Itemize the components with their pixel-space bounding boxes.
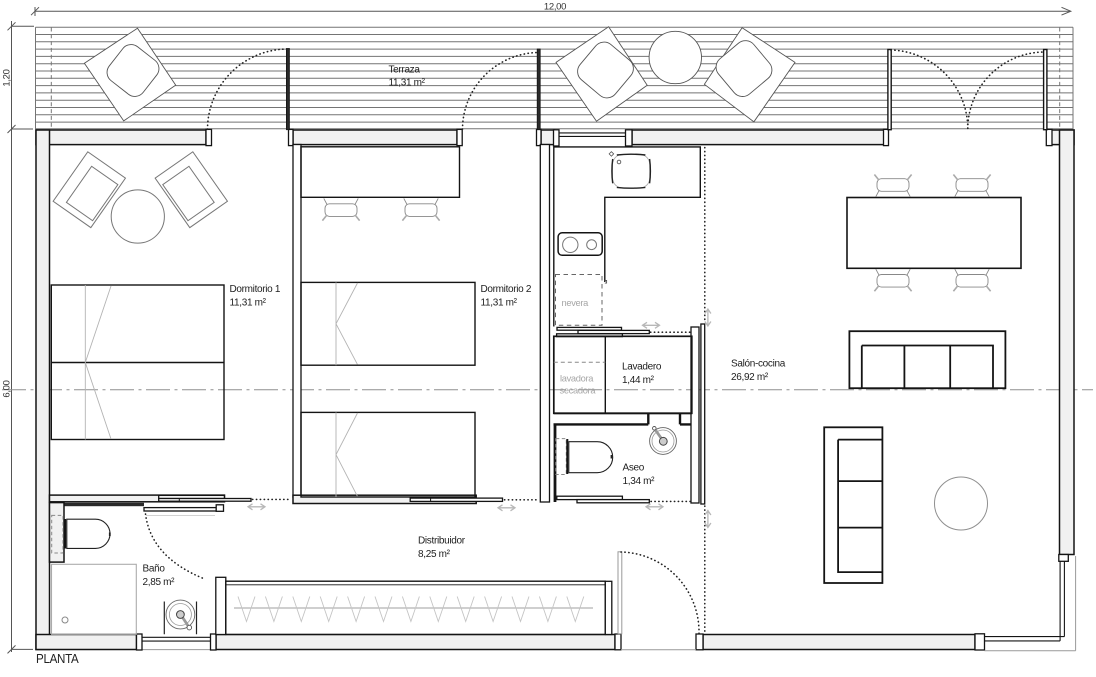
svg-text:26,92 m²: 26,92 m²	[731, 372, 769, 383]
svg-text:1,20: 1,20	[2, 69, 13, 86]
svg-text:Distribuidor: Distribuidor	[418, 536, 466, 547]
svg-text:Aseo: Aseo	[623, 463, 645, 474]
svg-text:lavadora: lavadora	[560, 374, 594, 384]
svg-text:Lavadero: Lavadero	[622, 362, 662, 373]
svg-text:2,85 m²: 2,85 m²	[143, 577, 176, 588]
svg-text:Terraza: Terraza	[389, 65, 421, 76]
svg-text:Salón-cocina: Salón-cocina	[731, 359, 786, 370]
svg-text:1,34 m²: 1,34 m²	[623, 476, 656, 487]
svg-text:nevera: nevera	[562, 298, 590, 308]
svg-text:8,25 m²: 8,25 m²	[418, 549, 451, 560]
svg-text:Baño: Baño	[143, 564, 166, 575]
svg-text:11,31 m²: 11,31 m²	[389, 78, 426, 89]
svg-text:11,31 m²: 11,31 m²	[481, 298, 518, 309]
svg-text:PLANTA: PLANTA	[36, 651, 79, 666]
svg-text:6,00: 6,00	[2, 380, 13, 397]
svg-text:secadora: secadora	[560, 386, 597, 396]
svg-text:Dormitorio 1: Dormitorio 1	[230, 284, 281, 295]
svg-text:Dormitorio 2: Dormitorio 2	[481, 284, 532, 295]
svg-text:11,31 m²: 11,31 m²	[230, 298, 267, 309]
svg-text:12,00: 12,00	[544, 1, 566, 12]
svg-text:1,44 m²: 1,44 m²	[622, 375, 655, 386]
